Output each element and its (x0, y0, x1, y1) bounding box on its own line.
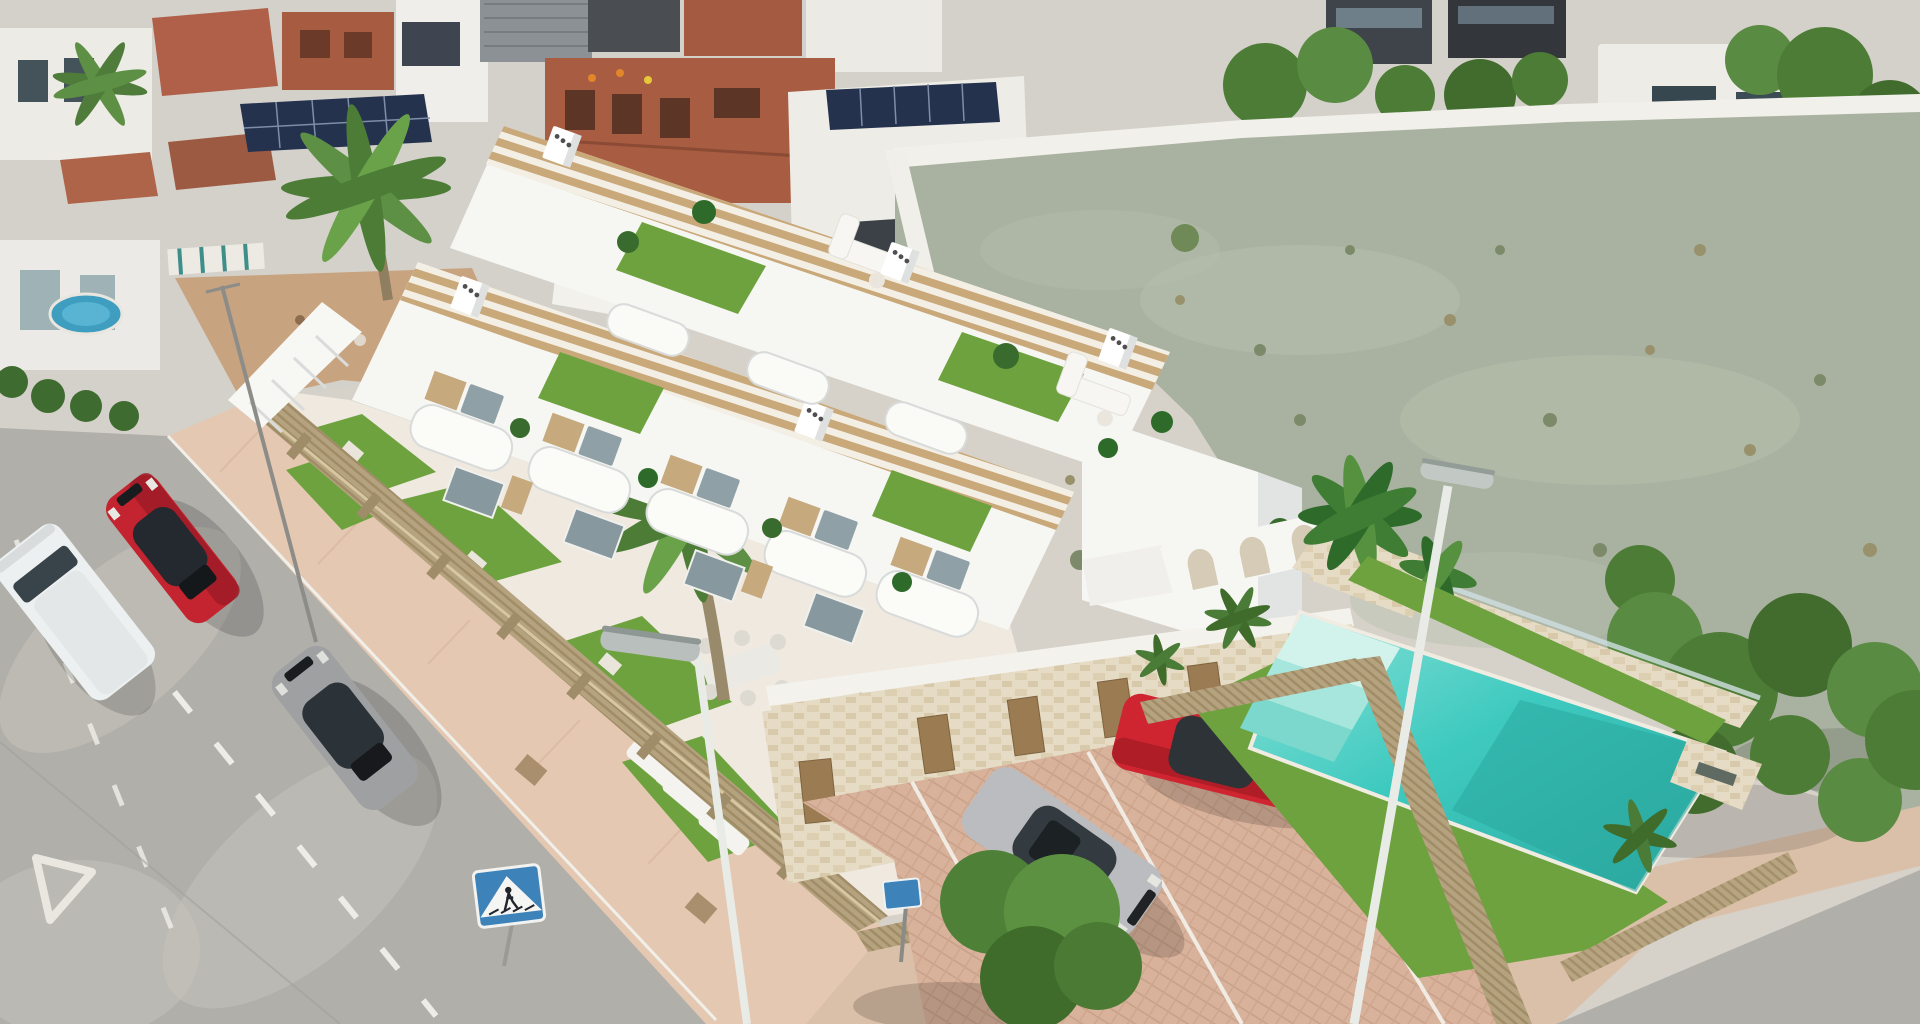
potted-plant (762, 518, 782, 538)
construction-worker (616, 69, 624, 77)
weed (1345, 245, 1355, 255)
house-loft (402, 22, 460, 66)
chair (740, 690, 756, 706)
potted-plant (892, 572, 912, 592)
terracotta-roof (152, 8, 278, 96)
chair (770, 634, 786, 650)
hedge (70, 390, 102, 422)
tree (1223, 43, 1307, 127)
opening (714, 88, 760, 118)
construction-worker (588, 74, 596, 82)
weed (1593, 543, 1607, 557)
glass-band (1458, 6, 1554, 24)
weed (1694, 244, 1706, 256)
opening (565, 90, 595, 130)
weed (1495, 245, 1505, 255)
weed (1744, 444, 1756, 456)
house-window (300, 30, 330, 58)
pool-water-small (62, 302, 110, 326)
potted-plant (638, 468, 658, 488)
hedge (109, 401, 139, 431)
weed (1863, 543, 1877, 557)
potted-plant (510, 418, 530, 438)
weed (1175, 295, 1185, 305)
scrub-bush (1171, 224, 1199, 252)
weed (1065, 475, 1075, 485)
weed (1254, 344, 1266, 356)
dark-roof (588, 0, 680, 52)
scene-canvas: Aerial render of a new-build white townh… (0, 0, 1920, 1024)
potted-plant (1098, 438, 1118, 458)
construction-worker (644, 76, 652, 84)
weed (1294, 414, 1306, 426)
weed (1543, 413, 1557, 427)
potted-plant (993, 343, 1019, 369)
glass-band (1336, 8, 1422, 28)
tree-canopy (1054, 922, 1142, 1010)
terracotta-roof (684, 0, 802, 56)
weed (1814, 374, 1826, 386)
tree (1512, 52, 1568, 108)
solar-array (826, 82, 1000, 130)
opening (612, 94, 642, 134)
weed (1645, 345, 1655, 355)
tree (1297, 27, 1373, 103)
terracotta-roof (60, 152, 158, 204)
opening (660, 98, 690, 138)
brick-house (282, 12, 394, 90)
hedge (31, 379, 65, 413)
aerial-photo: Aerial render of a new-build white townh… (0, 0, 1920, 1024)
potted-plant (617, 231, 639, 253)
sign-board-group (473, 864, 545, 928)
potted-plant (692, 200, 716, 224)
house-window (344, 32, 372, 58)
house-window (18, 60, 48, 102)
weed (1444, 314, 1456, 326)
chair (734, 630, 750, 646)
potted-plant (1151, 411, 1173, 433)
sign-board (883, 878, 922, 910)
tree (1750, 715, 1830, 795)
